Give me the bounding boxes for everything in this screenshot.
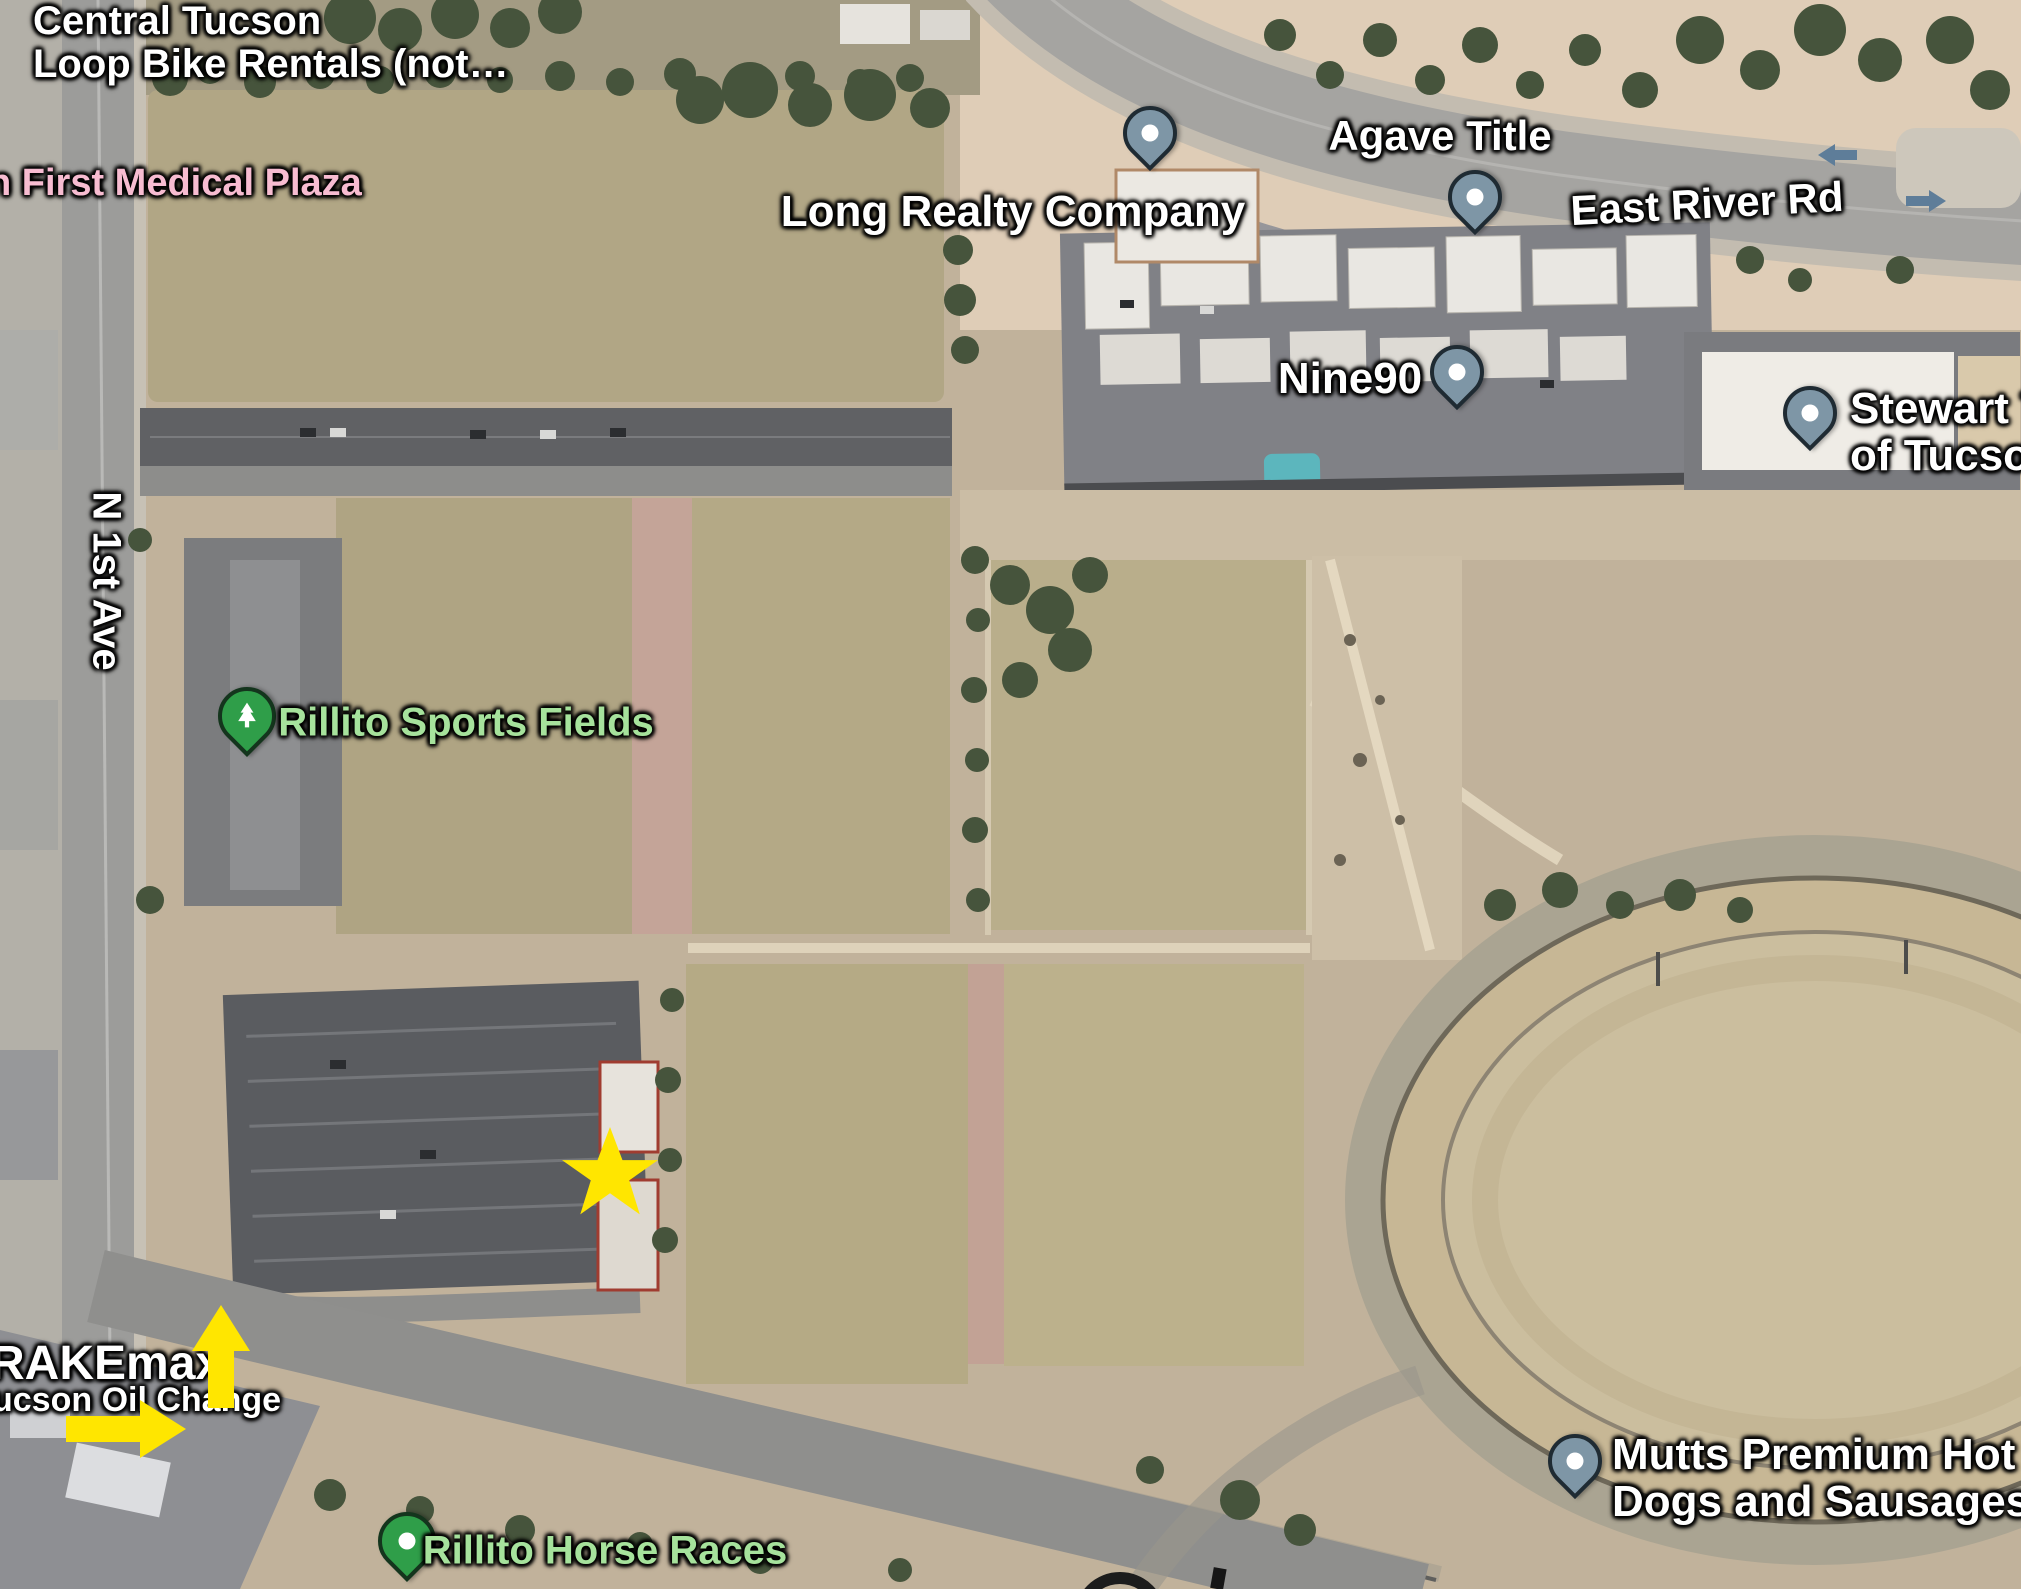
pin-dot-icon — [1563, 1449, 1587, 1473]
pine-tree-icon — [231, 700, 263, 732]
label-mutts-hot-dogs[interactable]: Mutts Premium Hot Dogs and Sausages — [1612, 1431, 2021, 1525]
label-long-realty[interactable]: Long Realty Company — [781, 187, 1246, 237]
traffic-arrow-left-icon — [1818, 144, 1858, 166]
north-field — [148, 90, 944, 402]
pin-dot-icon — [1138, 121, 1162, 145]
pin-dot-icon — [395, 1529, 419, 1553]
arrow-head — [140, 1400, 186, 1458]
up-arrow-annotation-icon — [192, 1305, 250, 1408]
label-line: Mutts Premium Hot — [1612, 1431, 2021, 1478]
arrow-shaft — [208, 1349, 234, 1408]
traffic-arrow-right-icon — [1906, 190, 1946, 212]
label-line: Stewart T — [1850, 385, 2021, 432]
label-rillito-sports-fields[interactable]: Rillito Sports Fields — [278, 701, 654, 746]
map-canvas[interactable]: Central Tucson Loop Bike Rentals (not… n… — [0, 0, 2021, 1589]
southwest-parking-lot — [223, 981, 649, 1295]
pin-dot-icon — [1798, 401, 1822, 425]
south-east-field — [1004, 964, 1304, 1366]
pin-dot-icon — [1445, 360, 1469, 384]
label-n-1st-ave: N 1st Ave — [84, 491, 129, 670]
arrow-head — [192, 1305, 250, 1351]
label-nine90[interactable]: Nine90 — [1278, 354, 1422, 404]
label-stewart-title[interactable]: Stewart T of Tucson — [1850, 385, 2021, 479]
label-bike-rentals[interactable]: Central Tucson Loop Bike Rentals (not… — [33, 0, 509, 86]
label-line: of Tucson — [1850, 432, 2021, 479]
label-first-medical-plaza[interactable]: n First Medical Plaza — [0, 162, 362, 205]
right-arrow-annotation-icon — [66, 1400, 186, 1458]
label-line: Dogs and Sausages — [1612, 1478, 2021, 1525]
label-rillito-horse-races[interactable]: Rillito Horse Races — [423, 1529, 788, 1574]
south-west-field — [686, 964, 968, 1384]
label-line: Loop Bike Rentals (not… — [33, 43, 509, 86]
label-line: Central Tucson — [33, 0, 509, 43]
pin-dot-icon — [1463, 185, 1487, 209]
label-agave-title[interactable]: Agave Title — [1328, 112, 1551, 160]
mid-east-field — [692, 498, 950, 934]
satellite-imagery — [0, 0, 2021, 1589]
arrow-shaft — [66, 1416, 144, 1442]
